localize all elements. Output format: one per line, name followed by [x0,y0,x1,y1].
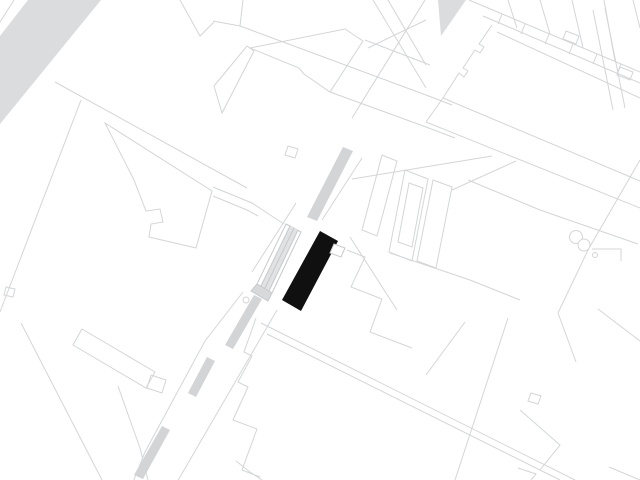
parcel-line-west [0,100,81,312]
parcel-line-se-b [426,322,465,375]
parcel-line-bars-top [352,156,492,179]
building-nw-outline [105,123,212,248]
site-plan-map [0,0,640,480]
bay-window-1 [563,31,579,44]
bottom-edge-notch [236,461,262,480]
party-wall-4 [569,44,573,54]
street-line-topright-c [368,20,426,48]
small-rect-se [528,393,541,404]
building-top-center [250,29,363,92]
cross-street-line-a [213,187,284,224]
parcel-line-bars-bottom [390,253,520,300]
party-wall-1 [498,14,502,24]
street-line-topright-a [373,0,426,88]
parcel-tick-2 [540,0,550,34]
street-line-topright-b [388,0,426,65]
median-dash-1 [307,147,353,221]
staircase-outline [347,250,412,348]
courtyard-line-south [426,122,640,208]
party-wall-5 [593,54,597,64]
tree-dot [593,253,598,258]
block-west-facade [426,25,492,122]
parcel-line-long-nw [55,82,247,188]
parcel-line-bottom-b [267,334,560,480]
parcel-line-bottom-a [261,323,575,480]
median-dash-4 [134,426,170,479]
street-west-edge-lower [118,292,243,480]
party-wall-2 [521,24,525,34]
parcel-line-sw [21,323,102,480]
parcel-tick-5 [633,0,640,28]
street-band-topleft [0,0,101,124]
median-dash-3 [188,357,215,397]
cross-street-line-b [213,196,258,216]
hut-sw [147,375,166,393]
corner-line-se-1 [598,309,640,341]
street-line-east [540,210,638,244]
parcel-corner-top [180,0,214,36]
corner-line-se-4 [609,467,640,480]
site-plan-viewport [0,0,640,480]
street-wedge-top [438,0,466,36]
party-wall-3 [545,34,549,44]
building-sw-bar [73,329,155,388]
frontage-line-b [483,16,640,83]
block-east-line-a [593,10,613,110]
tree-2 [578,239,590,251]
median-dash-2 [225,295,262,349]
facade-line-diag-a [452,161,516,190]
rowhouse-bar-1 [362,155,397,236]
corner-line-se-3 [520,410,560,470]
parcel-line-se-a [455,318,508,480]
frontage-line-a [469,0,640,72]
facade-line-diag-b [468,180,540,210]
street-east-edge-lower [155,310,277,480]
parcel-line [0,0,14,22]
corner-line-se-2 [558,313,576,362]
tree-small-west [243,297,249,303]
parcel-tick-1 [508,0,517,28]
small-quad-bottom [518,468,536,480]
small-square-center [285,146,298,158]
parcel-line-top [240,0,243,26]
block-topleft-inner [214,46,254,113]
rowhouse-bar-2-inner [398,183,423,247]
